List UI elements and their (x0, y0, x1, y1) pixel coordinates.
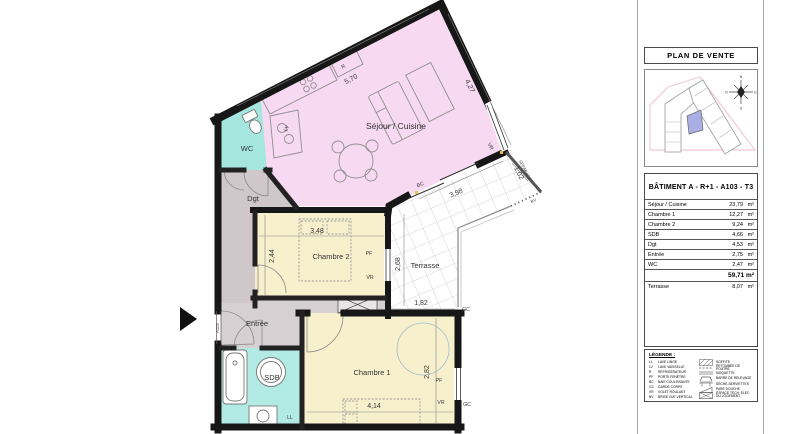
compass-e: E (754, 91, 757, 95)
site-plan-box: N E S O (644, 69, 758, 167)
plan-title-box: PLAN DE VENTE (644, 47, 758, 64)
room-label-sdb: SDB (264, 373, 279, 382)
area-row: Entrée 2,75 m² (645, 249, 757, 259)
elec-space-icon (699, 392, 716, 399)
compass-o: O (725, 91, 728, 95)
room-label-chambre1: Chambre 1 (353, 368, 390, 377)
beam-dashed-icon (699, 366, 716, 370)
code-gc-chambre1: GC (463, 402, 471, 408)
area-row: Chambre 2 9,24 m² (645, 219, 757, 229)
plan-de-vente-page: { "plan": { "rooms": { "sejour": "Séjour… (0, 0, 800, 434)
carpet-icon (699, 371, 716, 375)
room-label-chambre2: Chambre 2 (312, 252, 349, 261)
legend-symbol-row: ESPACE TECH. ÉLEC DU LOGEMENT (699, 392, 753, 397)
code-pf-chambre1: PF (436, 378, 443, 384)
legend-code-row: BVBRISE VUE VERTICAL (649, 394, 699, 399)
code-washer: LL (287, 415, 293, 421)
building-title: BÂTIMENT A - R+1 - A103 - T3 (647, 184, 755, 191)
washer-drum (257, 410, 269, 422)
room-label-wc: WC (241, 144, 254, 153)
code-gc-terrasse: GC (462, 307, 470, 313)
area-row: Chambre 1 12,27 m² (645, 209, 757, 219)
unit-number-label: A103 (215, 322, 220, 332)
compass-rose (729, 80, 753, 104)
site-plan: N E S O (645, 70, 757, 166)
dim-terrasse-width: 1,82 (414, 300, 428, 307)
code-pf-chambre2: PF (366, 251, 373, 257)
area-row-terrasse: Terrasse 8,07 m² (645, 281, 757, 291)
side-panel: PLAN DE VENTE N E S O BÂT (637, 0, 800, 434)
area-row: WC 2,47 m² (645, 259, 757, 269)
compass-s: S (740, 107, 743, 111)
room-label-sejour: Séjour / Cuisine (366, 121, 426, 131)
area-row: Dgt 4,53 m² (645, 239, 757, 249)
marker-dot (500, 151, 503, 154)
legend-symbol-row: RETOMBÉE DE POUTRE (699, 365, 753, 370)
dim-chambre1-width: 4,14 (367, 403, 381, 410)
area-row: SDB 4,66 m² (645, 229, 757, 239)
dim-chambre2-height: 2,44 (269, 249, 276, 263)
room-label-terrasse: Terrasse (411, 261, 440, 270)
area-total-row: 59,71 m² (645, 269, 757, 281)
bathtub-inner (226, 353, 244, 401)
unit-highlight (687, 110, 703, 134)
code-vr-chambre1: VR (437, 400, 444, 406)
panel-border-right (763, 0, 764, 434)
panel-border-left (637, 0, 638, 434)
legend-title: LÉGENDE : (649, 353, 753, 358)
legend-box: LÉGENDE : LLLAVE LINGE LVLAVE VAISSELLE … (644, 349, 758, 402)
dim-chambre2-width: 3,48 (310, 228, 324, 235)
floor-plan: Séjour / Cuisine WC Dgt Chambre 2 Terras… (0, 0, 640, 434)
dim-terrasse-height: 2,68 (395, 257, 402, 271)
legend-codes: LLLAVE LINGE LVLAVE VAISSELLE RRÉFRIGÉRA… (649, 360, 699, 399)
entrance-arrow (180, 307, 197, 331)
total-area: 59,71 m² (728, 272, 754, 279)
areas-table: Séjour / Cuisine 23,79 m² Chambre 1 12,2… (645, 199, 757, 291)
dim-chambre1-height: 2,82 (424, 365, 431, 379)
room-label-entree: Entrée (246, 319, 268, 328)
marker-dot (415, 191, 418, 194)
building-info-box: BÂTIMENT A - R+1 - A103 - T3 Séjour / Cu… (644, 173, 758, 347)
compass-n: N (740, 75, 743, 79)
legend-symbols: SOFFITE RETOMBÉE DE POUTRE MOQUETTE BARR… (699, 360, 753, 399)
page-title: PLAN DE VENTE (667, 51, 735, 60)
code-bv: BV (530, 197, 537, 204)
bathtub-drain (233, 361, 237, 365)
code-vr-chambre2: VR (366, 275, 373, 281)
room-label-dgt: Dgt (247, 194, 260, 203)
area-row: Séjour / Cuisine 23,79 m² (645, 199, 757, 209)
